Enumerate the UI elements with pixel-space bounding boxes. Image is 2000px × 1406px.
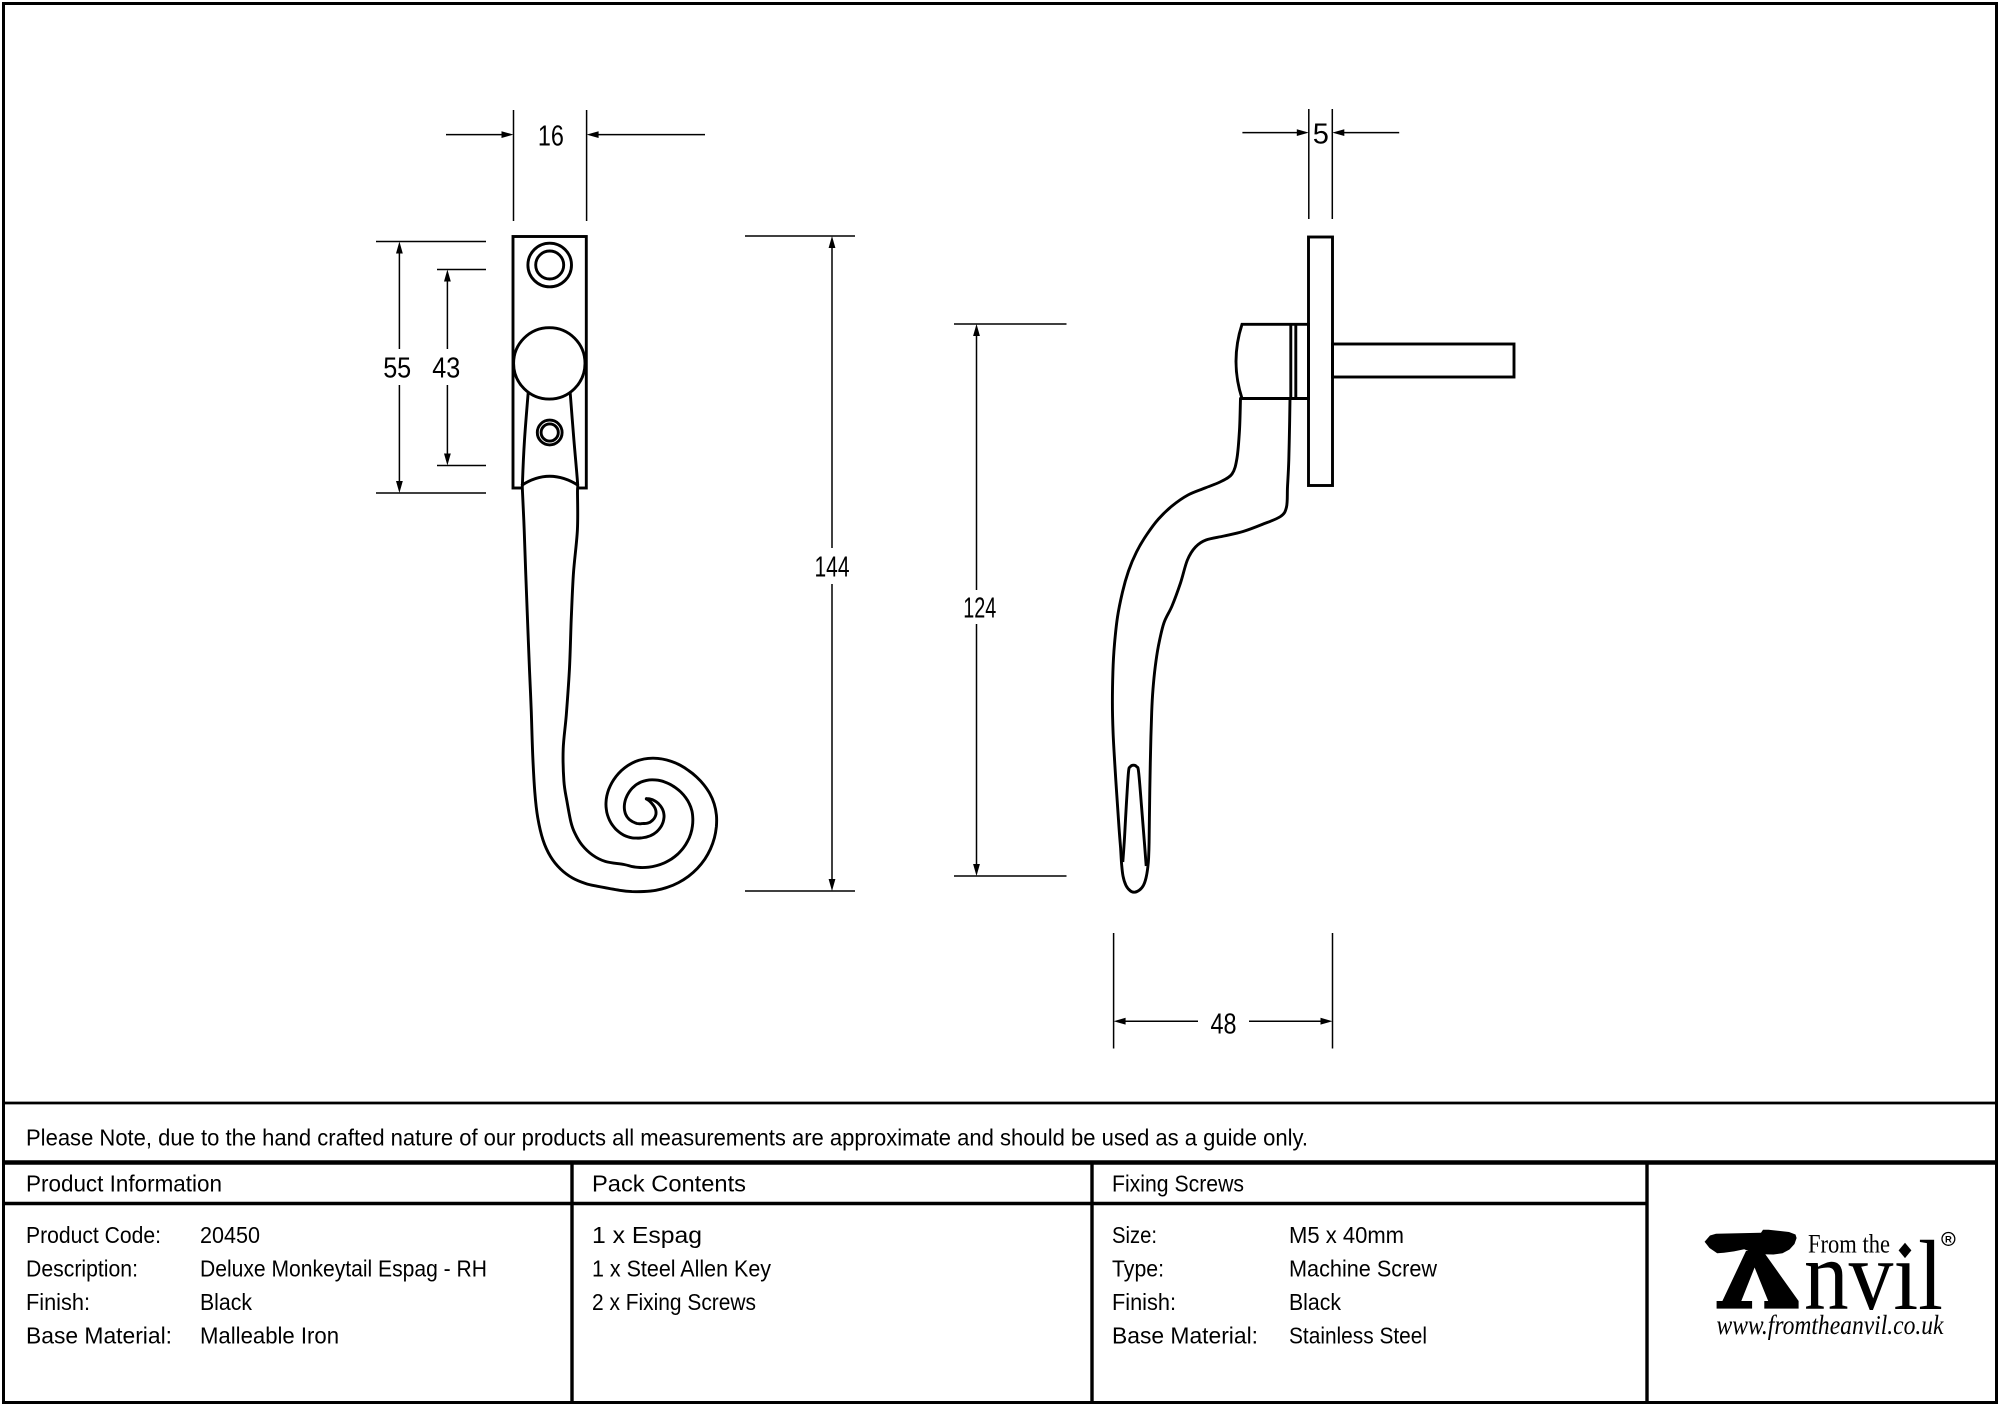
- svg-text:144: 144: [815, 552, 850, 584]
- svg-text:Product Information: Product Information: [26, 1171, 222, 1197]
- svg-text:Black: Black: [1289, 1289, 1341, 1315]
- svg-text:16: 16: [538, 121, 564, 153]
- svg-text:1 x Steel Allen Key: 1 x Steel Allen Key: [592, 1256, 771, 1282]
- svg-text:20450: 20450: [200, 1222, 260, 1248]
- svg-text:www.fromtheanvil.co.uk: www.fromtheanvil.co.uk: [1717, 1310, 1945, 1340]
- svg-text:Finish:: Finish:: [1112, 1289, 1176, 1315]
- svg-text:Deluxe Monkeytail Espag - RH: Deluxe Monkeytail Espag - RH: [200, 1256, 487, 1282]
- svg-text:Product Code:: Product Code:: [26, 1222, 161, 1248]
- svg-text:Pack Contents: Pack Contents: [592, 1171, 746, 1197]
- svg-text:Type:: Type:: [1112, 1256, 1164, 1282]
- svg-text:Stainless Steel: Stainless Steel: [1289, 1323, 1427, 1349]
- svg-text:124: 124: [963, 593, 996, 625]
- svg-text:Base Material:: Base Material:: [26, 1323, 172, 1349]
- svg-text:Description:: Description:: [26, 1256, 138, 1282]
- svg-text:Black: Black: [200, 1289, 252, 1315]
- svg-text:Finish:: Finish:: [26, 1289, 90, 1315]
- svg-text:Machine Screw: Machine Screw: [1289, 1256, 1438, 1282]
- svg-text:Fixing Screws: Fixing Screws: [1112, 1171, 1244, 1197]
- svg-text:55: 55: [383, 353, 411, 385]
- svg-text:48: 48: [1211, 1009, 1237, 1041]
- svg-text:M5 x 40mm: M5 x 40mm: [1289, 1222, 1404, 1248]
- svg-text:Please Note, due to the hand c: Please Note, due to the hand crafted nat…: [26, 1125, 1308, 1151]
- svg-text:R: R: [1945, 1235, 1952, 1246]
- svg-text:1 x Espag: 1 x Espag: [592, 1222, 702, 1248]
- svg-text:Malleable Iron: Malleable Iron: [200, 1323, 339, 1349]
- svg-text:5: 5: [1313, 119, 1329, 151]
- svg-text:Base Material:: Base Material:: [1112, 1323, 1258, 1349]
- svg-text:2 x Fixing Screws: 2 x Fixing Screws: [592, 1289, 756, 1315]
- svg-text:Size:: Size:: [1112, 1222, 1157, 1248]
- svg-text:43: 43: [432, 353, 460, 385]
